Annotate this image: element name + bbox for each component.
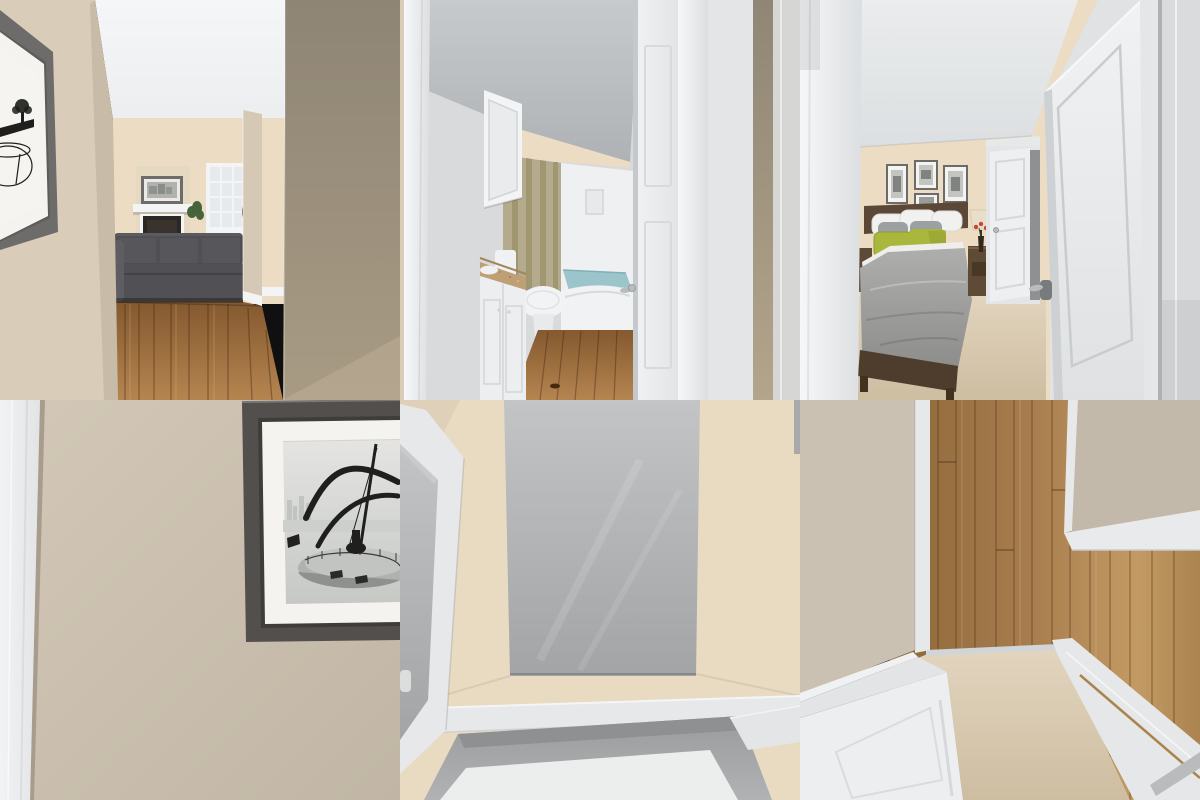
- middle-door: [986, 136, 1040, 304]
- panel-doorway-threshold: [800, 400, 1200, 800]
- render-overhead-alcove: [400, 400, 800, 800]
- left-wall: [800, 400, 930, 695]
- gallery-frames: [886, 160, 968, 208]
- shower-tub: [561, 163, 633, 330]
- gray-wall-panel: [504, 400, 700, 676]
- render-hallway-living-room: [0, 0, 400, 400]
- left-jamb: [400, 0, 430, 400]
- render-grid: [0, 0, 1200, 800]
- right-jamb-and-walls: [678, 0, 800, 400]
- floor-knot: [550, 384, 560, 389]
- panel-framed-art-closeup: [0, 400, 400, 800]
- left-jamb: [800, 0, 862, 400]
- tan-wall-strip: [753, 0, 773, 400]
- render-bedroom: [800, 0, 1200, 400]
- right-jamb: [1162, 0, 1200, 400]
- render-doorway-threshold: [800, 400, 1200, 800]
- wood-floor: [113, 302, 283, 400]
- right-wall: [283, 0, 400, 400]
- fireplace: [133, 166, 193, 244]
- art-frame: [242, 400, 400, 642]
- vase: [978, 236, 984, 252]
- wood-floor: [526, 330, 638, 400]
- panel-bathroom: [400, 0, 800, 400]
- panel-overhead-alcove: [400, 400, 800, 800]
- sofa: [110, 233, 243, 303]
- granite-vanity: [480, 258, 526, 400]
- small-object: [400, 670, 411, 692]
- sundial-photo: [283, 440, 400, 604]
- render-framed-art: [0, 400, 400, 800]
- right-wall: [1064, 400, 1200, 533]
- render-bathroom: [400, 0, 800, 400]
- panel-hallway-living-room: [0, 0, 400, 400]
- half-wall-partition: [243, 110, 262, 306]
- left-jamb: [915, 400, 930, 653]
- panel-bedroom: [800, 0, 1200, 400]
- medicine-cabinet: [484, 90, 522, 208]
